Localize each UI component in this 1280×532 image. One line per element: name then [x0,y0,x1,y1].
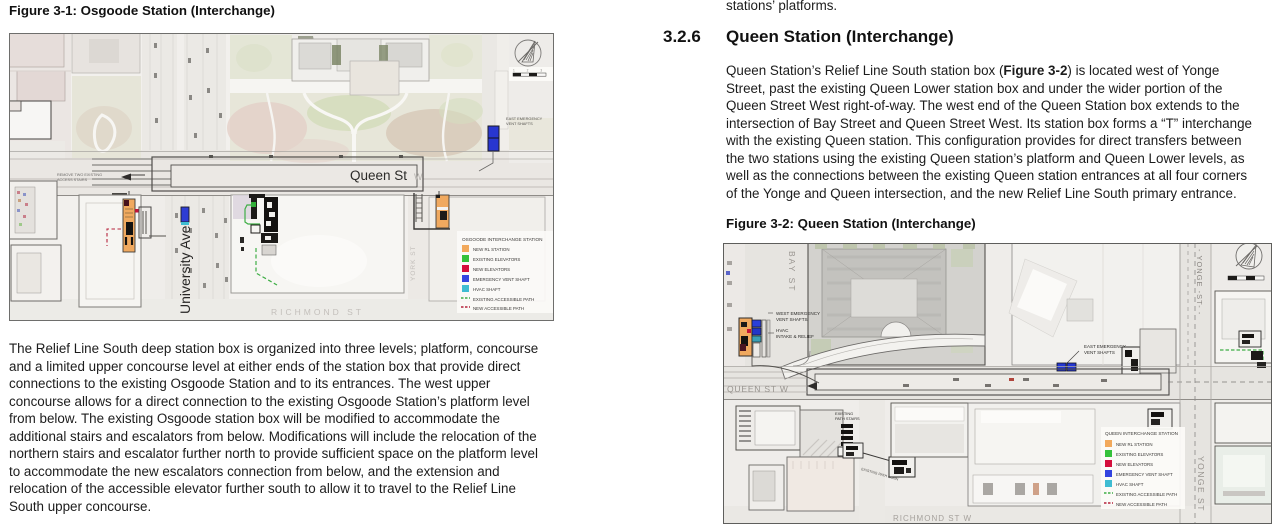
svg-text:ACCESS STAIRS: ACCESS STAIRS [57,178,88,182]
svg-text:NEW ACCESSIBLE PATH: NEW ACCESSIBLE PATH [1116,502,1167,507]
svg-text:REMOVE TWO EXISTING: REMOVE TWO EXISTING [57,173,102,177]
svg-text:VENT SHAFTS: VENT SHAFTS [506,121,533,126]
svg-text:1 2 3 4: 1 2 3 4 [513,69,554,73]
svg-text:OSGOODE INTERCHANGE STATION: OSGOODE INTERCHANGE STATION [462,237,543,242]
svg-text:RICHMOND ST W: RICHMOND ST W [893,514,972,523]
svg-text:WEST EMERGENCY: WEST EMERGENCY [776,311,820,316]
svg-text:NEW ACCESSIBLE PATH: NEW ACCESSIBLE PATH [473,306,524,311]
svg-text:Queen St: Queen St [350,168,407,183]
svg-text:EXISTING ACCESSIBLE PATH: EXISTING ACCESSIBLE PATH [1116,492,1177,497]
svg-text:QUEEN ST W: QUEEN ST W [727,384,789,394]
svg-text:BAY ST: BAY ST [787,251,797,292]
svg-text:NEW RL STATION: NEW RL STATION [1116,442,1153,447]
svg-text:NEW ELEVATORS: NEW ELEVATORS [1116,462,1153,467]
svg-text:EXISTING ELEVATORS: EXISTING ELEVATORS [1116,452,1163,457]
svg-text:University Ave: University Ave [177,225,193,314]
svg-text:YONGE ST: YONGE ST [1196,456,1206,512]
svg-text:EXISTING ELEVATORS: EXISTING ELEVATORS [473,257,520,262]
svg-text:- YONGE -ST- -: - YONGE -ST- - [1195,249,1204,315]
svg-text:EXISTING ACCESSIBLE PATH: EXISTING ACCESSIBLE PATH [473,297,534,302]
svg-text:W: W [414,172,423,182]
svg-text:INTAKE & RELIEF: INTAKE & RELIEF [776,334,814,339]
svg-text:YORK ST: YORK ST [410,245,417,281]
svg-text:VENT SHAFTS: VENT SHAFTS [776,317,808,322]
svg-text:PATH STAIRS: PATH STAIRS [835,416,860,421]
svg-text:HVAC: HVAC [776,328,789,333]
svg-text:QUEEN INTERCHANGE STATION: QUEEN INTERCHANGE STATION [1105,431,1178,436]
svg-text:HVAC SHAFT: HVAC SHAFT [473,287,501,292]
svg-text:NEW ELEVATORS: NEW ELEVATORS [473,267,510,272]
svg-text:RICHMOND ST: RICHMOND ST [271,307,364,317]
svg-text:VENT SHAFTS: VENT SHAFTS [1084,350,1115,355]
svg-text:EMERGENCY VENT SHAFT: EMERGENCY VENT SHAFT [1116,472,1173,477]
svg-text:EMERGENCY VENT SHAFT: EMERGENCY VENT SHAFT [473,277,530,282]
svg-text:NEW RL STATION: NEW RL STATION [473,247,510,252]
svg-text:HVAC SHAFT: HVAC SHAFT [1116,482,1144,487]
svg-text:EAST EMERGENCY: EAST EMERGENCY [1084,344,1126,349]
